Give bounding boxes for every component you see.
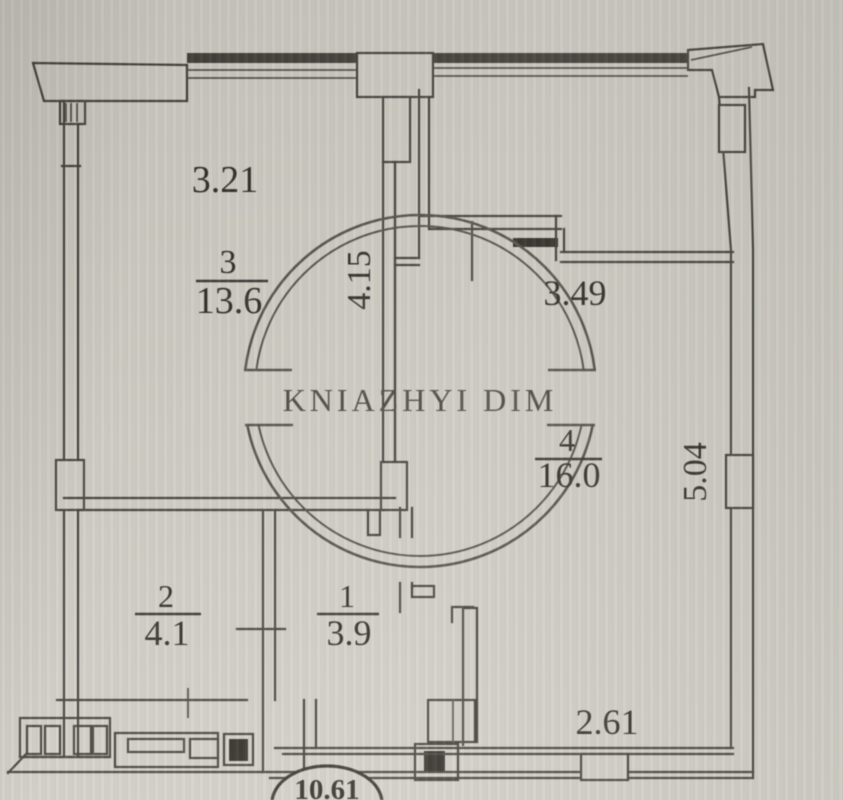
room1-number: 1: [339, 578, 355, 614]
top-center-pier: [357, 53, 433, 97]
right-wall-notch: [719, 105, 745, 152]
dim-room3-width: 3.21: [192, 159, 259, 201]
right-wall-inner: [719, 97, 731, 748]
dim-upper-right-width: 3.49: [544, 273, 607, 313]
door-jamb-left: [412, 586, 434, 597]
entry-door-notch: [581, 754, 628, 780]
dim-room4-depth: 5.04: [677, 442, 714, 502]
interior-walls: [64, 90, 733, 780]
room1-right-wall: [400, 508, 412, 612]
labels: 3.21 3 13.6 4.15 3.49 4 16.0 5.04 2.61 2…: [135, 159, 714, 742]
room4-top-wall: [561, 252, 733, 262]
bottom-wall-junction: [304, 700, 316, 772]
room3-area: 13.6: [196, 280, 263, 322]
room3-bottom-wall: [64, 498, 395, 510]
room2-area: 4.1: [145, 613, 190, 653]
watermark: KNIAZHYI DIM: [244, 215, 596, 567]
floor-plan-drawing: KNIAZHYI DIM 3.21 3 13.6 4.15 3.49 4 16.…: [0, 0, 843, 800]
top-center-pier-stem: [383, 97, 410, 162]
radiator-section: [45, 726, 60, 754]
stamp-value: 10.61: [294, 774, 359, 800]
bottom-wall-upper: [275, 748, 733, 754]
wall-end-return: [368, 510, 380, 535]
watermark-text: KNIAZHYI DIM: [283, 382, 558, 418]
right-wall-pier: [726, 455, 753, 508]
floor-plan-scan: KNIAZHYI DIM 3.21 3 13.6 4.15 3.49 4 16.…: [0, 0, 843, 800]
floor-plan-svg: KNIAZHYI DIM 3.21 3 13.6 4.15 3.49 4 16.…: [0, 0, 843, 800]
top-glazing-band-left: [187, 53, 357, 63]
loggia-left-wall: [419, 90, 429, 258]
room4-area: 16.0: [538, 455, 601, 495]
room1-area: 3.9: [327, 613, 372, 653]
right-wall-outer: [749, 88, 753, 778]
room2-room1-divider: [237, 510, 285, 772]
radiator-section: [27, 726, 41, 754]
duct-shaft: [428, 700, 475, 742]
bottom-walls: [8, 688, 753, 780]
dim-bottom-width: 2.61: [576, 702, 639, 742]
room3-right-wall: [383, 162, 395, 510]
window-inner-small: [190, 739, 218, 758]
radiator-section: [74, 726, 91, 754]
left-wall-pier: [56, 460, 84, 510]
bay-window-top-left: [33, 63, 187, 101]
vent-square: [229, 739, 248, 761]
room4-number: 4: [559, 422, 575, 458]
room3-wall-pier: [381, 462, 407, 510]
room2-number: 2: [158, 578, 174, 614]
top-glazing-band-right: [433, 53, 688, 63]
room3-number: 3: [220, 244, 237, 281]
radiator-section: [93, 726, 107, 754]
dim-room3-depth: 4.15: [341, 250, 378, 310]
window-inner: [128, 739, 184, 752]
left-wall: [62, 101, 80, 755]
room3-wall-step: [395, 258, 419, 265]
